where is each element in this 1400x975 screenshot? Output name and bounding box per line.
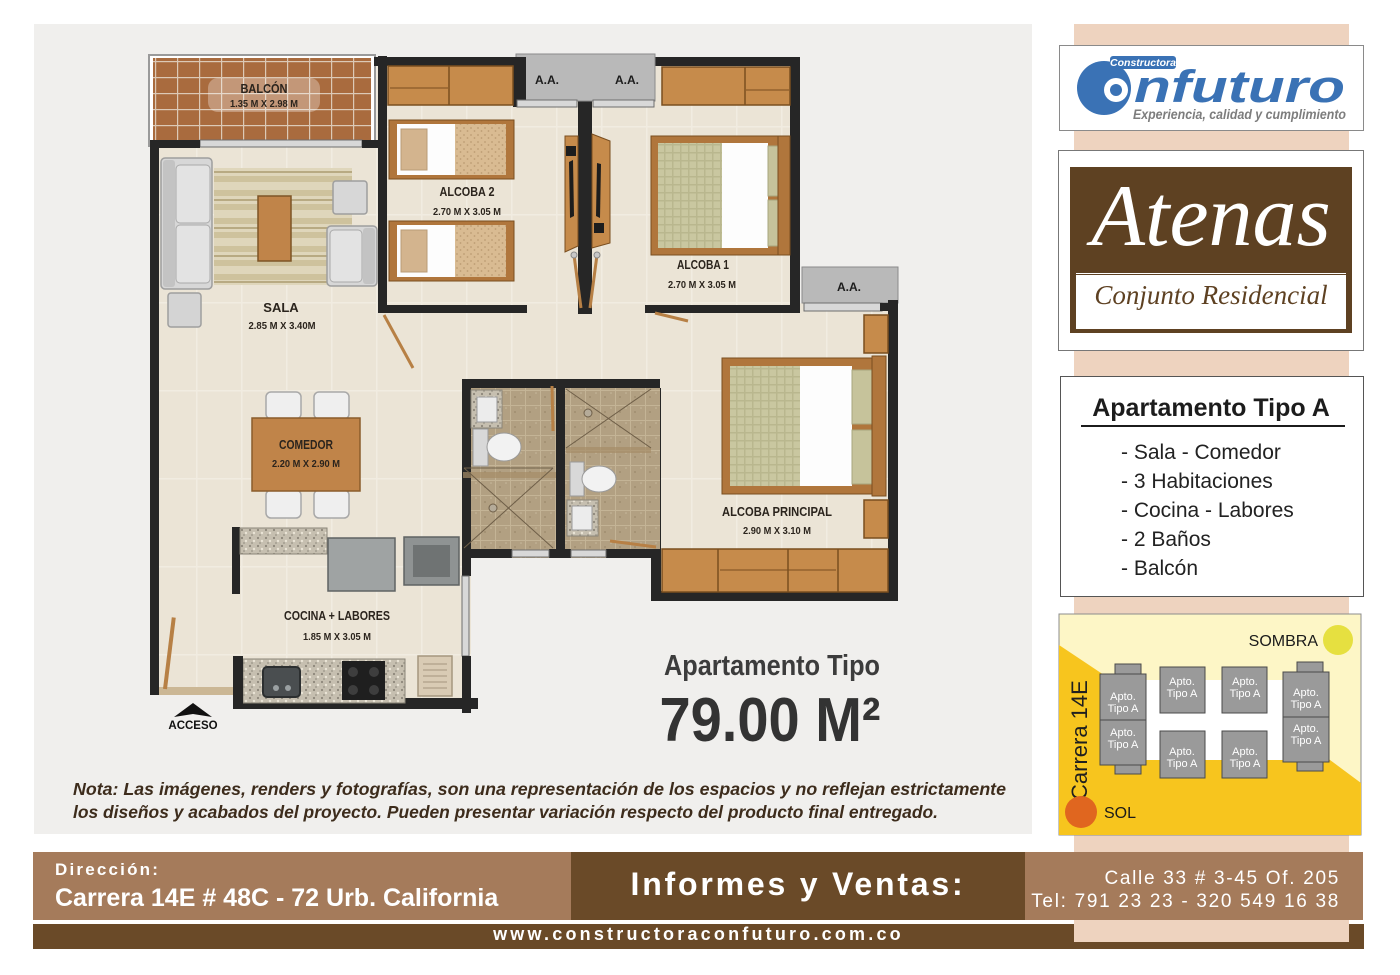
svg-text:Carrera 14E: Carrera 14E <box>1067 680 1092 800</box>
svg-text:Tipo A: Tipo A <box>1167 688 1198 700</box>
svg-text:Tipo A: Tipo A <box>1108 703 1139 715</box>
svg-text:Apto.: Apto. <box>1169 746 1195 758</box>
svg-text:Tipo A: Tipo A <box>1167 758 1198 770</box>
svg-text:SOMBRA: SOMBRA <box>1249 633 1319 650</box>
svg-text:Apto.: Apto. <box>1293 723 1319 735</box>
svg-text:Apto.: Apto. <box>1110 727 1136 739</box>
svg-text:Apto.: Apto. <box>1293 687 1319 699</box>
svg-text:Apto.: Apto. <box>1232 676 1258 688</box>
svg-text:Tipo A: Tipo A <box>1108 739 1139 751</box>
svg-text:Apto.: Apto. <box>1169 676 1195 688</box>
svg-text:SOL: SOL <box>1104 805 1136 822</box>
svg-text:Apto.: Apto. <box>1232 746 1258 758</box>
svg-text:Tipo A: Tipo A <box>1291 699 1322 711</box>
svg-text:Apto.: Apto. <box>1110 691 1136 703</box>
svg-text:Tipo A: Tipo A <box>1230 688 1261 700</box>
svg-text:Tipo A: Tipo A <box>1291 735 1322 747</box>
svg-text:Tipo A: Tipo A <box>1230 758 1261 770</box>
